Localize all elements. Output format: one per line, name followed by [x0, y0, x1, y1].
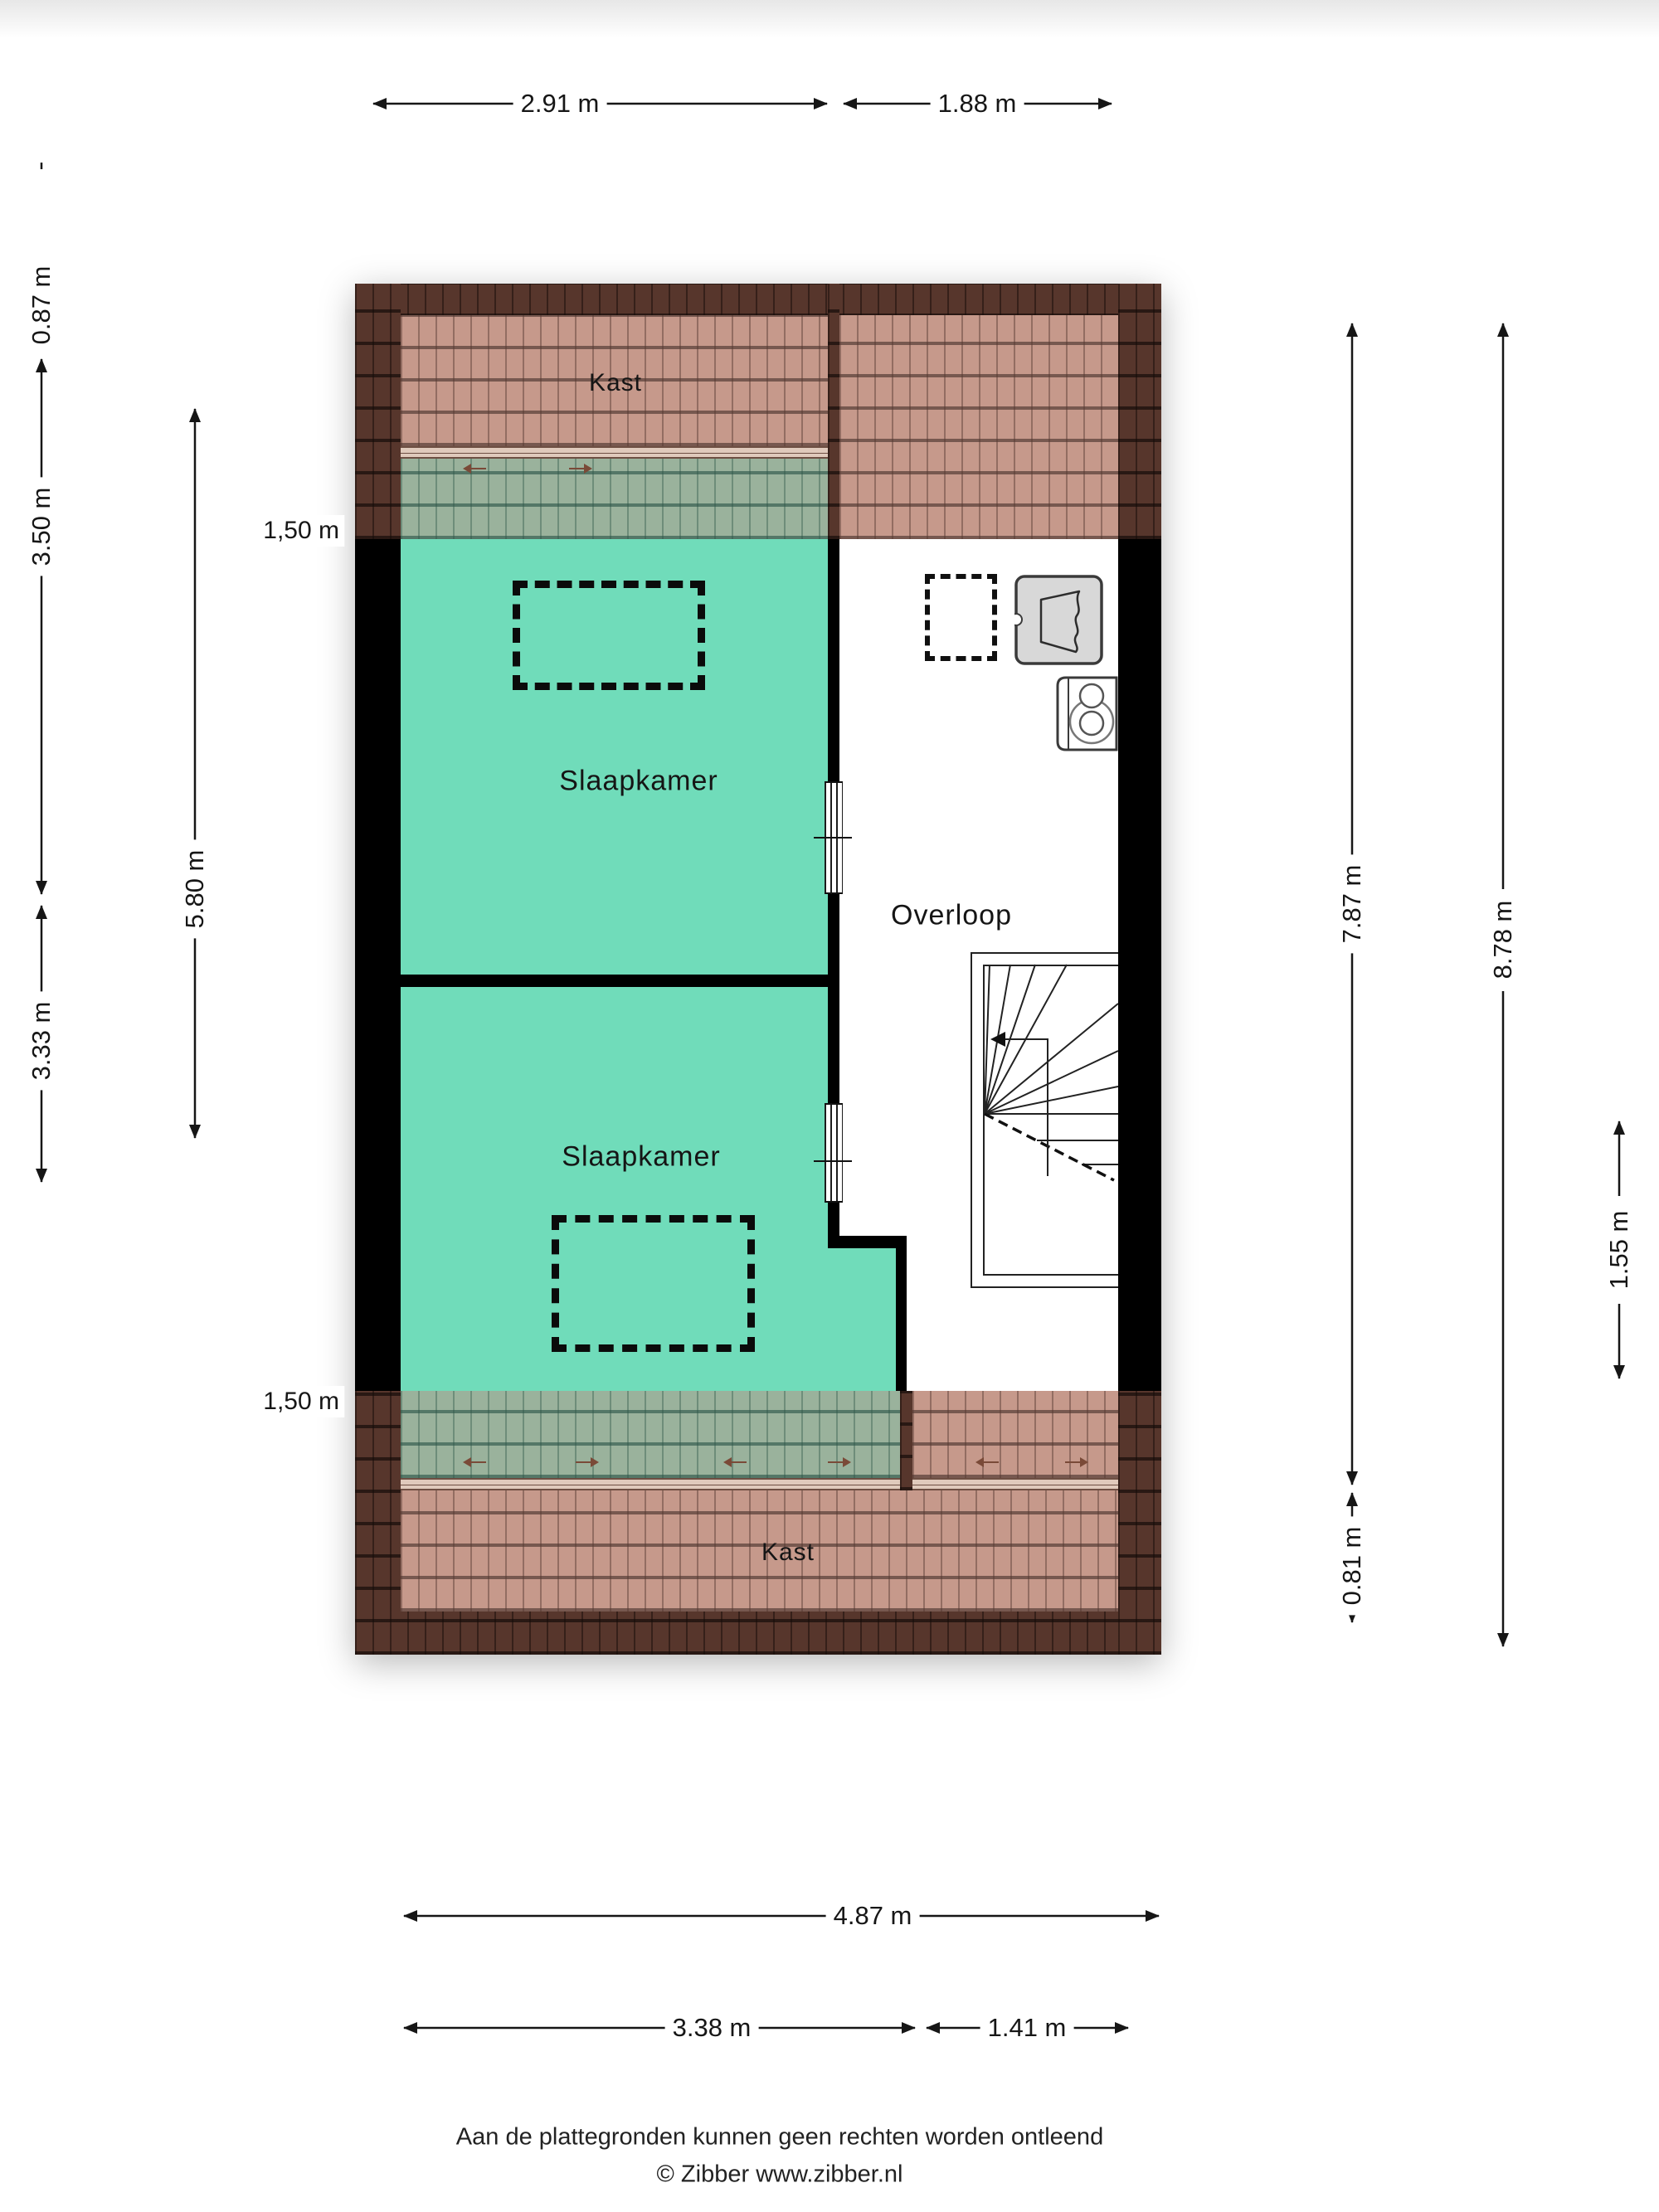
wall-right [1118, 539, 1161, 1391]
wall-left [355, 539, 401, 1391]
dim-label-stair-section: 1.55 m [1603, 1201, 1636, 1300]
label-slaapkamer-1: Slaapkamer [559, 766, 718, 798]
dim-label-roof-bottom: 0.81 m [1335, 1517, 1369, 1616]
slide-arrow-icon [725, 1461, 747, 1463]
washing-machine-icon [1056, 676, 1118, 751]
roof-edge-top-right [1118, 284, 1161, 539]
floorplan-page: { "plan": { "type": "floorplan-attic", "… [0, 0, 1659, 2212]
wall-step-vertical [896, 1248, 907, 1391]
slide-arrow-icon [576, 1461, 597, 1463]
label-kast-bottom: Kast [761, 1539, 815, 1567]
roof-kast-bottom [401, 1490, 1118, 1612]
stair-walkline-arrow [990, 1032, 1048, 1176]
wall-between-bedrooms [401, 975, 839, 987]
kast-top-sliding-rail [401, 446, 828, 459]
room-slaapkamer-2-extension [828, 1248, 896, 1391]
roof-over-overloop-top [839, 315, 1118, 539]
label-kast-top: Kast [589, 369, 642, 397]
kast-bottom-sliding-rail-right [912, 1478, 1118, 1490]
dim-label-bottom-left: 3.38 m [665, 2011, 759, 2044]
roof-edge-bottom [355, 1612, 1161, 1655]
roof-edge-bottom-left [355, 1391, 401, 1655]
slide-arrow-icon [828, 1461, 849, 1463]
wall-overloop-lower [828, 987, 839, 1103]
slide-arrow-icon [1065, 1461, 1087, 1463]
label-slaapkamer-2: Slaapkamer [562, 1141, 720, 1174]
roof-over-bedroom-bottom [401, 1391, 900, 1478]
wardrobe-icon [1014, 575, 1103, 665]
dim-label-top-right: 1.88 m [931, 87, 1024, 120]
dim-label-room-top: 3.50 m [25, 478, 58, 576]
roof-divider-wall-bottom [900, 1391, 912, 1490]
skylight-outline [925, 574, 997, 661]
slide-arrow-icon [465, 1461, 486, 1463]
dim-label-bottom-total: 4.87 m [826, 1899, 920, 1932]
wall-overloop-upper [828, 539, 839, 781]
wall-step-horizontal [828, 1236, 907, 1248]
bed-outline-2 [552, 1215, 755, 1352]
roof-edge-bottom-right [1118, 1391, 1161, 1655]
dim-label-inner-height: 7.87 m [1335, 855, 1369, 954]
slide-arrow-icon [465, 468, 486, 469]
floorplan: Kast Slaapkamer Slaapkamer Overloop Kast [355, 284, 1161, 1655]
stair-cut-line [985, 1114, 1114, 1180]
door-tick-1 [814, 837, 852, 839]
knee-wall-label-top: 1,50 m [258, 515, 344, 547]
roof-edge-top-left [355, 284, 401, 539]
footer-disclaimer: Aan de plattegronden kunnen geen rechten… [456, 2124, 1103, 2151]
page-top-shadow [0, 0, 1659, 38]
bed-outline-1 [513, 581, 705, 690]
knee-wall-label-bottom: 1,50 m [258, 1386, 344, 1417]
footer-copyright: © Zibber www.zibber.nl [657, 2161, 903, 2189]
dim-label-inner-total: 5.80 m [178, 840, 212, 939]
dim-label-room-bottom: 3.33 m [25, 992, 58, 1091]
roof-divider-wall-top [828, 284, 839, 539]
staircase [971, 952, 1118, 1288]
roof-edge-top [355, 284, 1161, 317]
door-tick-2 [814, 1160, 852, 1162]
wall-overloop-mid [828, 894, 839, 987]
slide-arrow-icon [569, 468, 591, 469]
slide-arrow-icon [977, 1461, 999, 1463]
dim-label-bottom-right: 1.41 m [980, 2011, 1074, 2044]
dim-label-total-height: 8.78 m [1486, 891, 1520, 989]
dim-label-roof-top: 0.87 m [25, 256, 58, 355]
kast-bottom-sliding-rail-left [401, 1478, 900, 1490]
dim-label-top-left: 2.91 m [513, 87, 607, 120]
door-slaapkamer-2 [825, 1103, 843, 1203]
label-overloop: Overloop [891, 900, 1012, 932]
